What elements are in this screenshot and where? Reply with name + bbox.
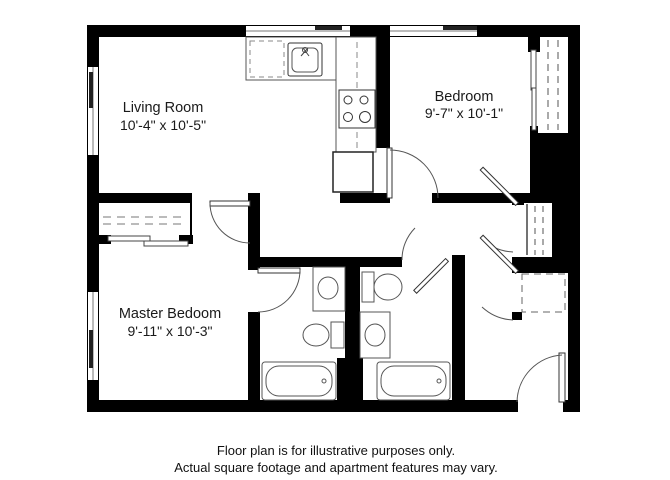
wall-tub-divider <box>337 358 363 400</box>
bedroom-closet <box>531 40 558 130</box>
floor-plan-svg: Living Room 10'-4" x 10'-5" Bedroom 9'-7… <box>0 0 670 480</box>
wall-master-east-lower <box>248 312 260 400</box>
bedroom-dims: 9'-7" x 10'-1" <box>425 105 503 121</box>
wall-kitchen-south <box>340 193 390 203</box>
bathtub-icon-1 <box>262 362 336 400</box>
room-labels: Living Room 10'-4" x 10'-5" Bedroom 9'-7… <box>119 89 503 339</box>
wall-bath-divider <box>345 257 360 358</box>
wall-right <box>568 25 580 412</box>
kitchen <box>246 37 376 192</box>
disclaimer-line-2: Actual square footage and apartment feat… <box>174 460 498 475</box>
living-room-label: Living Room <box>123 100 204 116</box>
vanity-sink-icon-1 <box>313 267 345 311</box>
stove-icon <box>339 90 375 128</box>
bedroom-door <box>387 148 438 198</box>
vanity-sink-icon-2 <box>360 312 390 358</box>
wall-bathrooms-north <box>250 257 402 267</box>
bedroom-label: Bedroom <box>435 89 494 105</box>
toilet-icon-2 <box>362 272 402 302</box>
master-bedroom-window <box>88 292 98 380</box>
hall-closet-b <box>522 274 565 312</box>
kitchen-sink-icon <box>288 43 322 76</box>
wall-living-master <box>87 193 192 203</box>
jamb-hall-closet-b-bottom <box>512 312 522 320</box>
refrigerator-icon <box>333 152 373 192</box>
master-bedroom-dims: 9'-11" x 10'-3" <box>127 323 212 339</box>
bedroom-window <box>390 26 477 36</box>
wall-bottom-right <box>563 400 580 412</box>
floor-plan: Living Room 10'-4" x 10'-5" Bedroom 9'-7… <box>0 0 670 480</box>
hall-closet-b-door <box>480 235 518 320</box>
wall-between-hall-closets <box>512 257 568 273</box>
kitchen-window <box>246 26 350 36</box>
bathtub-icon-2 <box>377 362 450 400</box>
wall-block-right <box>530 133 580 203</box>
master-bedroom-label: Master Bedoom <box>119 306 221 322</box>
toilet-icon-1 <box>303 322 344 348</box>
hall-closet-a <box>527 204 543 255</box>
master-bedroom-door <box>210 201 250 243</box>
walls <box>87 25 580 412</box>
wall-right-of-closet-a <box>552 203 568 257</box>
bathroom-1 <box>262 267 345 400</box>
master-bath-door <box>258 268 300 312</box>
disclaimer-line-1: Floor plan is for illustrative purposes … <box>217 443 455 458</box>
wall-bottom-left <box>87 400 518 412</box>
entry-door <box>517 353 565 402</box>
living-room-window <box>88 67 98 155</box>
living-room-dims: 10'-4" x 10'-5" <box>120 117 206 133</box>
bathroom-2 <box>360 272 450 400</box>
wall-bath2-entry <box>452 255 465 400</box>
master-closet <box>103 203 191 246</box>
wall-kitchen-bedroom <box>376 37 390 148</box>
disclaimer: Floor plan is for illustrative purposes … <box>174 443 498 475</box>
bathroom-2-door <box>402 228 448 293</box>
